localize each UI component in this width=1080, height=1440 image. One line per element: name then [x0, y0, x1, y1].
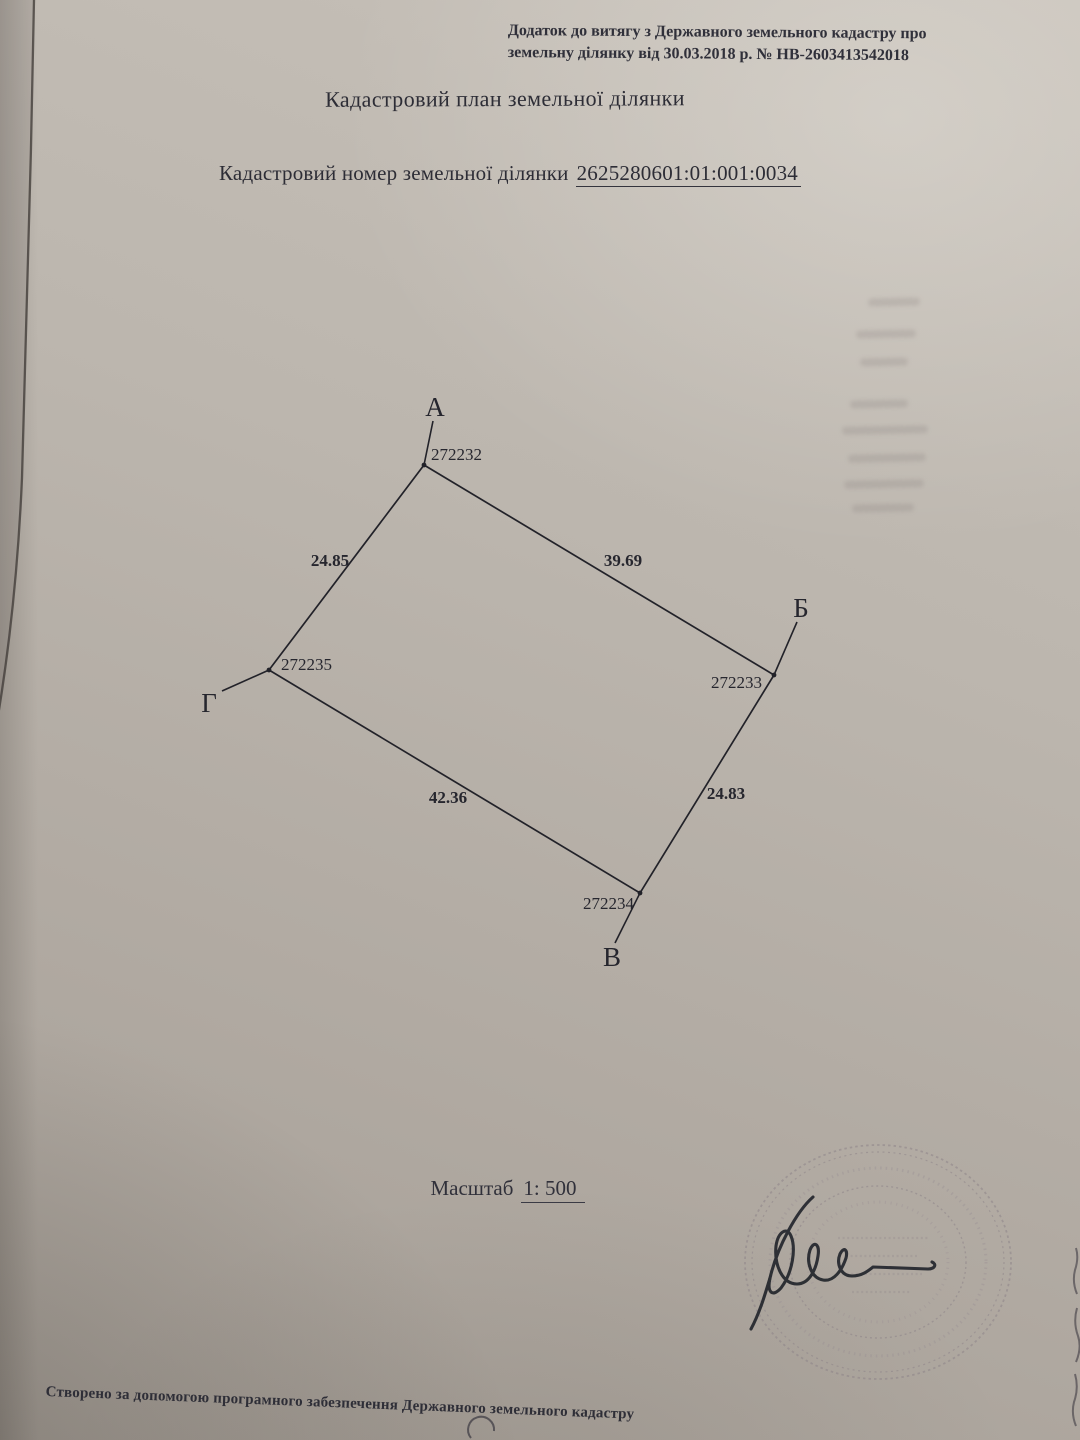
scanned-cadastral-document: Додаток до витягу з Державного земельног… — [0, 0, 1080, 1440]
stray-marks — [0, 0, 1080, 1440]
